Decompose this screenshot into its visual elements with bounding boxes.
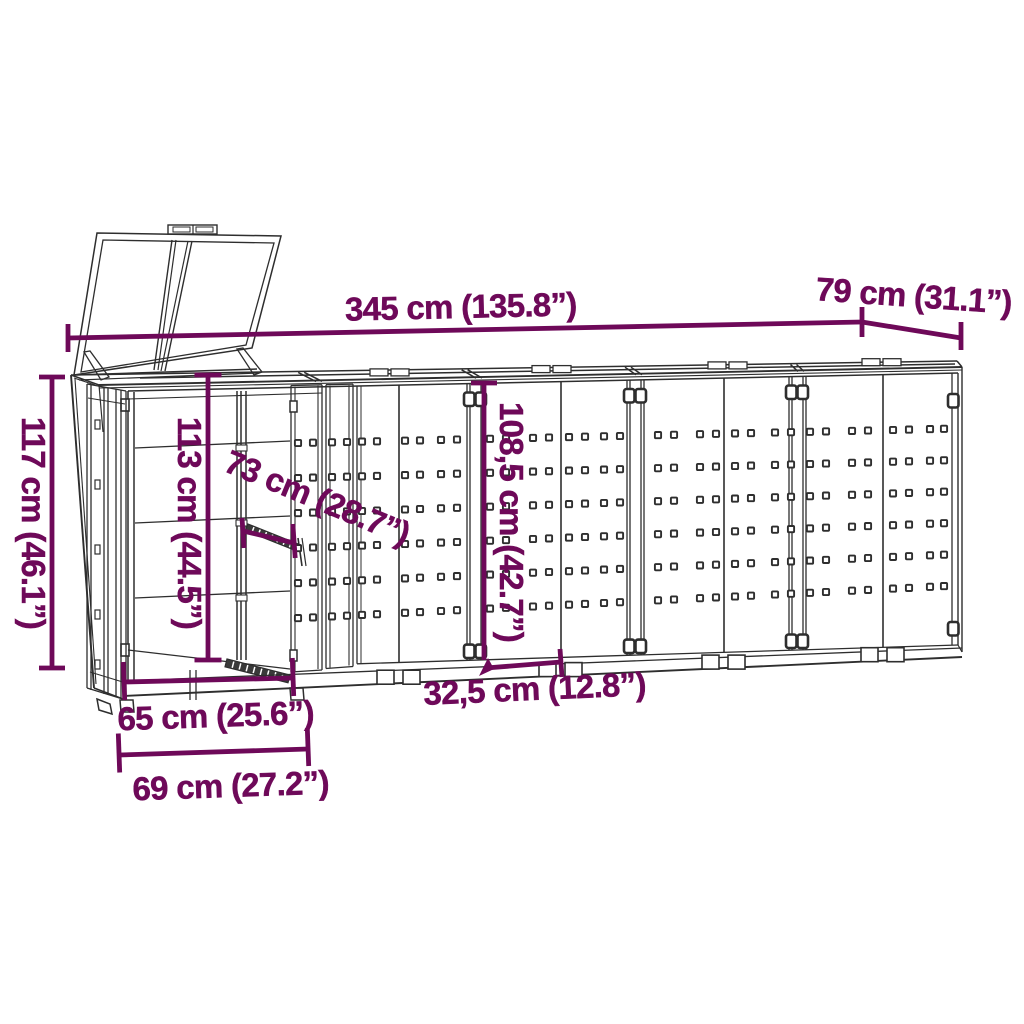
svg-text:113 cm (44.5”): 113 cm (44.5”) bbox=[171, 417, 208, 629]
svg-text:108,5 cm (42.7”): 108,5 cm (42.7”) bbox=[493, 402, 530, 642]
svg-text:65 cm (25.6”): 65 cm (25.6”) bbox=[117, 694, 315, 738]
svg-text:345 cm (135.8”): 345 cm (135.8”) bbox=[345, 285, 577, 327]
svg-text:117 cm (46.1”): 117 cm (46.1”) bbox=[15, 417, 52, 629]
svg-text:69 cm (27.2”): 69 cm (27.2”) bbox=[132, 764, 330, 808]
